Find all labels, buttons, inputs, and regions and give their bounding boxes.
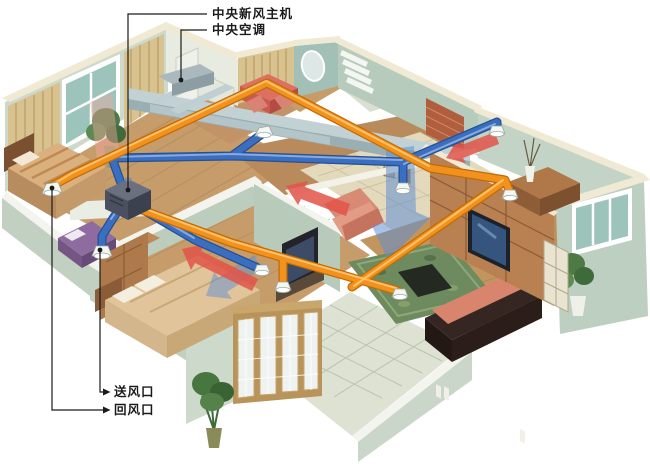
french-doors [233,300,322,404]
vent-diffuser [395,183,411,194]
vent-diffuser [392,289,408,300]
label-fresh-air-unit: 中央新风主机 [212,7,293,21]
hvac-cutaway-illustration: 中央新风主机 中央空调 送风口 回风口 [0,0,650,464]
vent-diffuser [502,190,518,201]
arrowhead-return-vent [103,407,111,414]
vent-diffuser [489,126,505,137]
label-supply-vent: 送风口 [114,385,155,399]
vent-diffuser [254,265,270,276]
arrowhead-supply-vent [103,389,111,396]
label-central-ac: 中央空调 [212,23,266,37]
vent-diffuser [92,246,112,259]
vent-diffuser [275,282,291,293]
isometric-scene [0,0,650,464]
label-return-vent: 回风口 [114,403,155,417]
